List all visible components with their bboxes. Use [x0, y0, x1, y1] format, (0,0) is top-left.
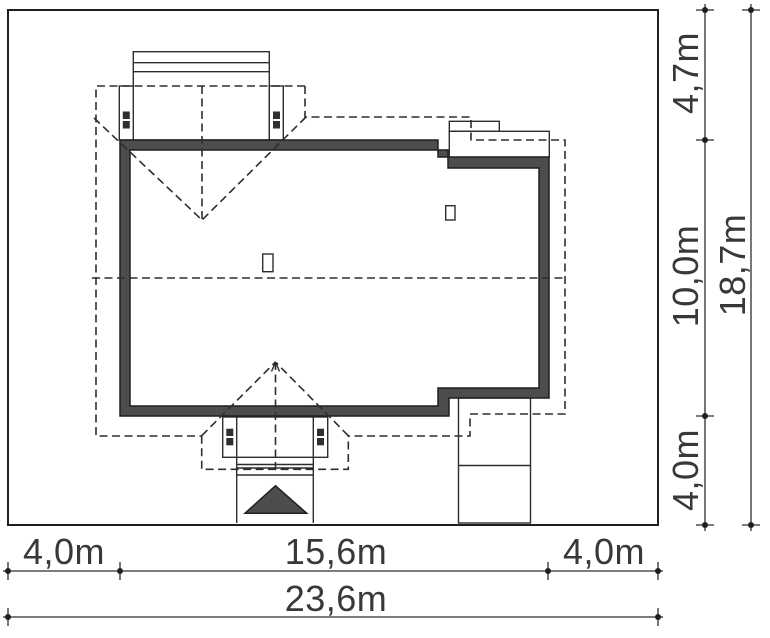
dim-tick-dot: [702, 413, 708, 419]
dim-tick-dot: [655, 614, 661, 620]
dim-label-right-middle: 10,0m: [665, 225, 706, 328]
annex-block-small: [449, 121, 499, 131]
dim-tick-dot: [5, 614, 11, 620]
porch-post-window: [317, 429, 324, 436]
dim-label-bottom-middle: 15,6m: [285, 531, 388, 572]
terrace-post-window: [123, 121, 130, 129]
dim-tick-dot: [702, 7, 708, 13]
dim-label-bottom-left: 4,0m: [23, 531, 105, 572]
dim-tick-dot: [702, 522, 708, 528]
dim-tick-dot: [117, 568, 123, 574]
dim-tick-dot: [655, 568, 661, 574]
annex-block-large: [449, 131, 549, 157]
dim-tick-dot: [702, 137, 708, 143]
entrance-marker-triangle: [245, 486, 307, 514]
site-plan-canvas: 4,0m 15,6m 4,0m 23,6m 4,7m 10,0m 4,0m 18…: [0, 0, 770, 638]
dimension-bottom: 4,0m 15,6m 4,0m 23,6m: [3, 531, 663, 626]
dim-label-right-total: 18,7m: [712, 214, 753, 317]
porch-post-window: [226, 429, 233, 436]
dimension-right: 4,7m 10,0m 4,0m 18,7m: [665, 4, 760, 531]
chimney: [263, 254, 273, 272]
chimney: [446, 206, 455, 220]
site-plan-figure: 4,0m 15,6m 4,0m 23,6m 4,7m 10,0m 4,0m 18…: [0, 0, 770, 638]
dim-label-bottom-total: 23,6m: [285, 578, 388, 619]
dim-label-right-top: 4,7m: [665, 32, 706, 114]
porch-post-window: [317, 438, 324, 445]
porch-post-window: [226, 438, 233, 445]
dim-tick-dot: [5, 568, 11, 574]
terrace-post-window: [273, 121, 280, 129]
dim-label-bottom-right: 4,0m: [563, 531, 645, 572]
side-walkway: [459, 398, 531, 523]
dim-tick-dot: [545, 568, 551, 574]
plot-boundary: [8, 10, 658, 525]
dim-tick-dot: [748, 7, 754, 13]
dim-tick-dot: [748, 522, 754, 528]
dim-label-right-bottom: 4,0m: [665, 429, 706, 511]
terrace-post-window: [123, 112, 130, 120]
terrace-post-window: [273, 112, 280, 120]
